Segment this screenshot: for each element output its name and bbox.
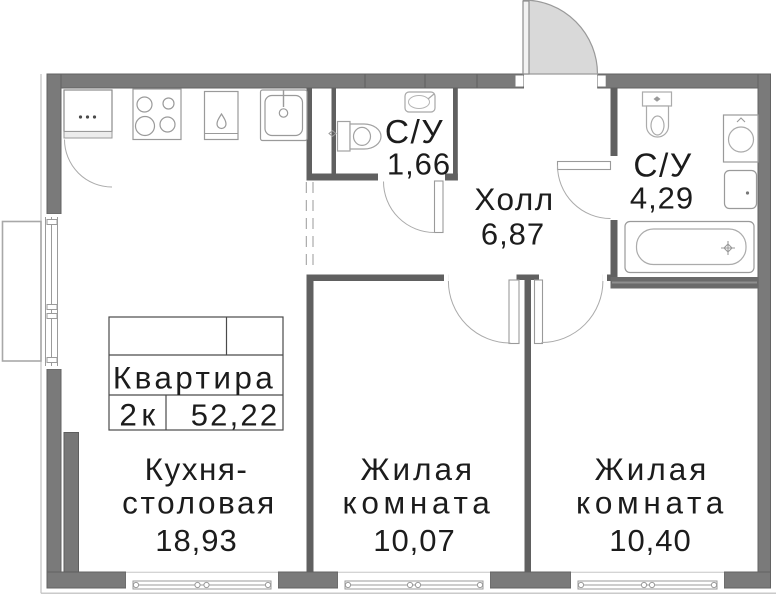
svg-text:комната: комната: [576, 485, 728, 521]
svg-text:18,93: 18,93: [155, 523, 238, 558]
svg-text:комната: комната: [342, 485, 494, 521]
svg-text:52,22: 52,22: [191, 398, 280, 433]
svg-text:Кухня-: Кухня-: [145, 451, 249, 487]
svg-text:С/У: С/У: [633, 148, 692, 185]
svg-text:2к: 2к: [119, 397, 159, 433]
svg-text:С/У: С/У: [385, 114, 444, 151]
svg-text:Квартира: Квартира: [113, 360, 276, 396]
svg-text:столовая: столовая: [122, 485, 277, 521]
svg-text:Жилая: Жилая: [595, 451, 710, 487]
svg-text:Холл: Холл: [474, 181, 554, 217]
svg-text:10,07: 10,07: [373, 523, 456, 558]
svg-text:6,87: 6,87: [481, 217, 545, 252]
svg-text:Жилая: Жилая: [360, 451, 475, 487]
svg-text:10,40: 10,40: [609, 523, 692, 558]
svg-text:1,66: 1,66: [387, 147, 451, 182]
svg-text:4,29: 4,29: [630, 181, 694, 216]
